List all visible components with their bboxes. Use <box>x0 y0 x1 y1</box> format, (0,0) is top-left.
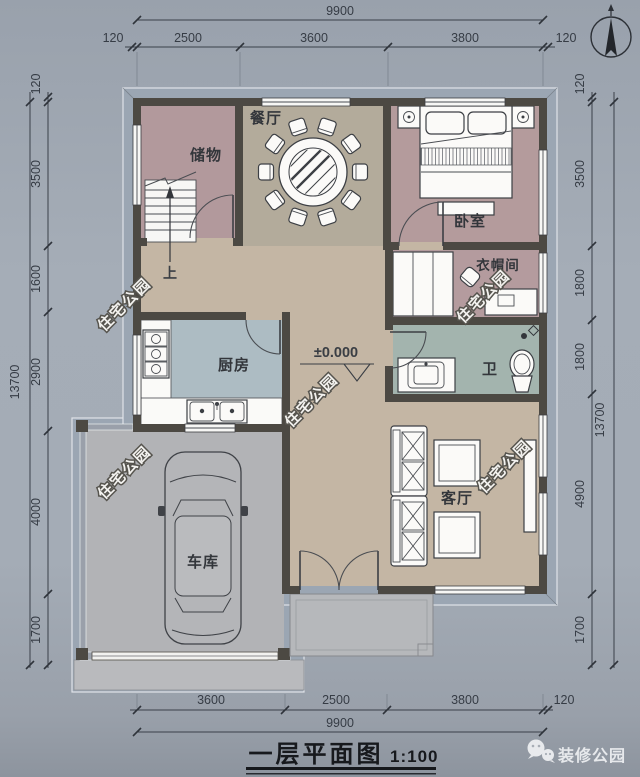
svg-text:120: 120 <box>103 31 124 45</box>
room-label-garage: 车库 <box>187 553 219 571</box>
dimensions-top: 9900 120 2500 3600 3800 120 <box>103 4 577 86</box>
svg-text:3500: 3500 <box>29 160 43 188</box>
window <box>133 335 141 415</box>
svg-text:2500: 2500 <box>174 31 202 45</box>
svg-text:9900: 9900 <box>326 4 354 18</box>
stairs-up-label: 上 <box>163 265 177 281</box>
svg-text:120: 120 <box>556 31 577 45</box>
floor-plan-svg: 储物 餐厅 卧室 衣帽间 厨房 卫 客厅 车库 上 ±0.000 9900 12… <box>0 0 640 777</box>
sofa <box>391 496 427 566</box>
svg-text:1700: 1700 <box>573 616 587 644</box>
svg-text:2500: 2500 <box>322 693 350 707</box>
page-title: 一层平面图 <box>249 741 384 768</box>
svg-text:1800: 1800 <box>573 343 587 371</box>
brand-name: 装修公园 <box>557 746 626 765</box>
north-compass-icon <box>591 4 631 57</box>
sofa <box>391 426 427 496</box>
wechat-brand: 装修公园 <box>528 740 627 766</box>
svg-text:120: 120 <box>554 693 575 707</box>
wechat-icon <box>528 740 556 764</box>
svg-text:±0.000: ±0.000 <box>314 345 358 361</box>
window <box>262 98 350 106</box>
svg-text:3600: 3600 <box>197 693 225 707</box>
svg-text:4900: 4900 <box>573 480 587 508</box>
svg-text:3800: 3800 <box>451 31 479 45</box>
room-label-kitchen: 厨房 <box>218 356 250 374</box>
dimensions-bottom: 3600 2500 3800 120 9900 <box>130 693 574 736</box>
kitchen-sink <box>187 400 247 423</box>
drawing-scale: 1:100 <box>390 747 438 766</box>
stove <box>143 330 169 378</box>
dimensions-left: 120 3500 1600 2900 4000 1700 13700 <box>8 74 52 669</box>
window <box>185 424 235 432</box>
svg-text:3500: 3500 <box>573 160 587 188</box>
window <box>539 415 547 477</box>
room-label-living: 客厅 <box>440 489 473 507</box>
room-label-storage: 储物 <box>190 146 222 164</box>
coffee-table <box>434 440 480 486</box>
window <box>425 98 505 106</box>
room-label-bedroom: 卧室 <box>454 212 486 230</box>
window <box>133 125 141 205</box>
room-label-bathroom: 卫 <box>482 361 498 378</box>
entry-porch <box>290 594 433 656</box>
svg-text:3800: 3800 <box>451 693 479 707</box>
wardrobe-closet <box>393 252 453 316</box>
floor-plan-image: 储物 餐厅 卧室 衣帽间 厨房 卫 客厅 车库 上 ±0.000 9900 12… <box>0 0 640 777</box>
window <box>539 253 547 313</box>
drawing-title: 一层平面图 1:100 <box>246 741 438 775</box>
svg-text:9900: 9900 <box>326 716 354 730</box>
window <box>539 493 547 555</box>
svg-text:1600: 1600 <box>29 265 43 293</box>
driveway <box>74 660 304 690</box>
svg-text:13700: 13700 <box>593 403 607 438</box>
svg-text:120: 120 <box>29 74 43 95</box>
window <box>435 586 525 594</box>
room-label-dining: 餐厅 <box>250 109 282 127</box>
svg-text:1700: 1700 <box>29 616 43 644</box>
washbasin <box>398 358 455 392</box>
svg-text:3600: 3600 <box>300 31 328 45</box>
svg-text:13700: 13700 <box>8 365 22 400</box>
svg-text:120: 120 <box>573 74 587 95</box>
svg-text:2900: 2900 <box>29 358 43 386</box>
coffee-table <box>434 512 480 558</box>
svg-text:4000: 4000 <box>29 498 43 526</box>
dimensions-right: 120 3500 1800 1800 4900 1700 13700 <box>573 74 618 669</box>
car <box>158 452 248 644</box>
window <box>539 150 547 235</box>
svg-text:1800: 1800 <box>573 269 587 297</box>
